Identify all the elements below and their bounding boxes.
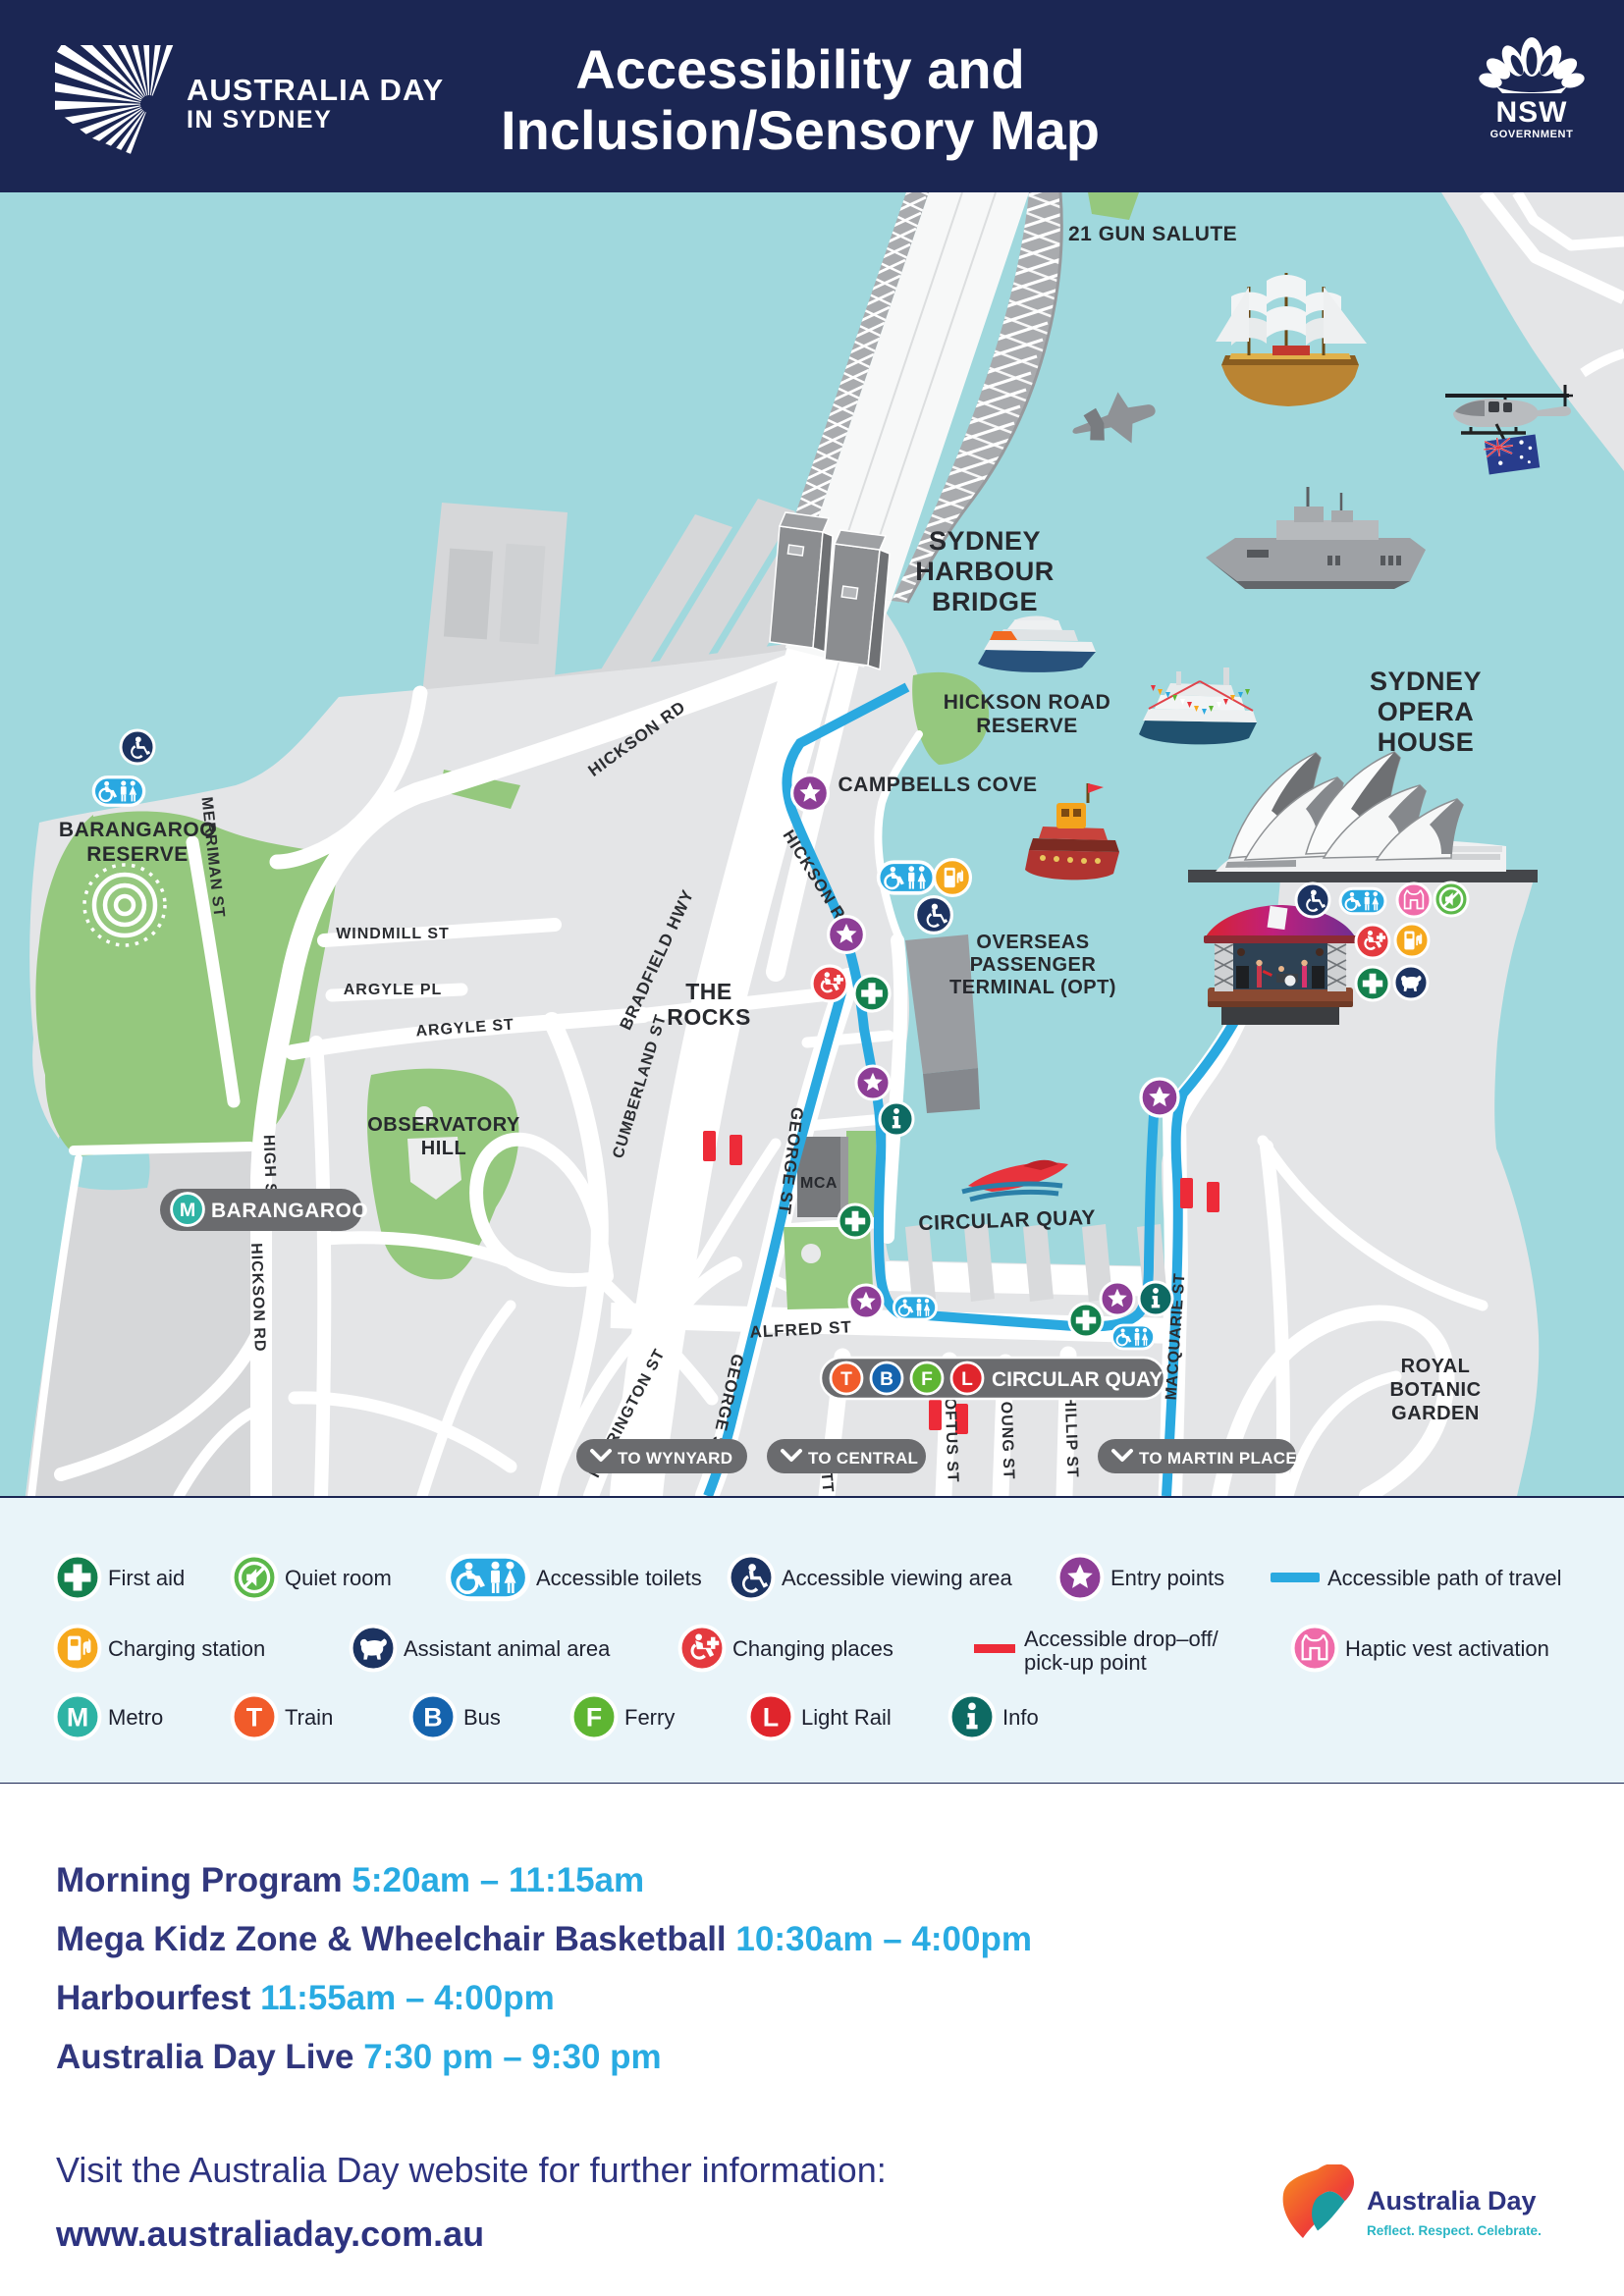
svg-text:SYDNEYOPERAHOUSE: SYDNEYOPERAHOUSE bbox=[1370, 667, 1482, 757]
svg-text:IN SYDNEY: IN SYDNEY bbox=[187, 106, 332, 133]
svg-text:MCA: MCA bbox=[800, 1175, 838, 1192]
svg-text:SYDNEYHARBOURBRIDGE: SYDNEYHARBOURBRIDGE bbox=[915, 526, 1055, 616]
svg-text:Info: Info bbox=[1002, 1705, 1039, 1730]
svg-text:Changing places: Changing places bbox=[732, 1636, 893, 1661]
svg-text:Haptic vest activation: Haptic vest activation bbox=[1345, 1636, 1549, 1661]
svg-text:YOUNG ST: YOUNG ST bbox=[997, 1390, 1016, 1480]
svg-text:Accessibility and: Accessibility and bbox=[575, 38, 1025, 100]
svg-text:Bus: Bus bbox=[463, 1705, 501, 1730]
svg-text:Ferry: Ferry bbox=[624, 1705, 675, 1730]
svg-text:LOFTUS ST: LOFTUS ST bbox=[941, 1387, 960, 1483]
svg-text:Entry points: Entry points bbox=[1110, 1566, 1224, 1590]
svg-text:Charging station: Charging station bbox=[108, 1636, 265, 1661]
svg-text:Accessible path of travel: Accessible path of travel bbox=[1327, 1566, 1561, 1590]
svg-text:21 GUN SALUTE: 21 GUN SALUTE bbox=[1068, 223, 1237, 245]
svg-text:Accessible drop–off/: Accessible drop–off/ bbox=[1024, 1627, 1219, 1651]
svg-text:GOVERNMENT: GOVERNMENT bbox=[1490, 129, 1574, 140]
svg-text:Accessible viewing area: Accessible viewing area bbox=[782, 1566, 1013, 1590]
svg-text:pick-up point: pick-up point bbox=[1024, 1650, 1147, 1675]
svg-text:CAMPBELLS COVE: CAMPBELLS COVE bbox=[838, 774, 1037, 796]
svg-text:Train: Train bbox=[285, 1705, 333, 1730]
svg-text:Accessible toilets: Accessible toilets bbox=[536, 1566, 702, 1590]
svg-text:WINDMILL ST: WINDMILL ST bbox=[336, 926, 450, 942]
svg-text:Metro: Metro bbox=[108, 1705, 163, 1730]
svg-text:AUSTRALIA DAY: AUSTRALIA DAY bbox=[187, 73, 444, 107]
svg-text:Reflect. Respect. Celebrate.: Reflect. Respect. Celebrate. bbox=[1367, 2223, 1542, 2238]
svg-text:Assistant animal area: Assistant animal area bbox=[404, 1636, 611, 1661]
svg-text:ARGYLE PL: ARGYLE PL bbox=[344, 982, 443, 998]
svg-text:Light Rail: Light Rail bbox=[801, 1705, 892, 1730]
svg-text:Australia Day: Australia Day bbox=[1367, 2186, 1537, 2216]
svg-text:First aid: First aid bbox=[108, 1566, 185, 1590]
svg-text:CIRCULAR QUAY: CIRCULAR QUAY bbox=[992, 1368, 1163, 1391]
svg-text:BARANGAROO: BARANGAROO bbox=[211, 1200, 368, 1222]
svg-text:Quiet room: Quiet room bbox=[285, 1566, 392, 1590]
svg-text:NSW: NSW bbox=[1496, 96, 1568, 129]
svg-text:Inclusion/Sensory Map: Inclusion/Sensory Map bbox=[501, 99, 1100, 161]
svg-text:TO WYNYARD: TO WYNYARD bbox=[618, 1449, 732, 1468]
svg-text:TO CENTRAL: TO CENTRAL bbox=[808, 1449, 918, 1468]
svg-text:TO MARTIN PLACE: TO MARTIN PLACE bbox=[1139, 1449, 1297, 1468]
svg-text:ROYALBOTANICGARDEN: ROYALBOTANICGARDEN bbox=[1389, 1356, 1481, 1424]
